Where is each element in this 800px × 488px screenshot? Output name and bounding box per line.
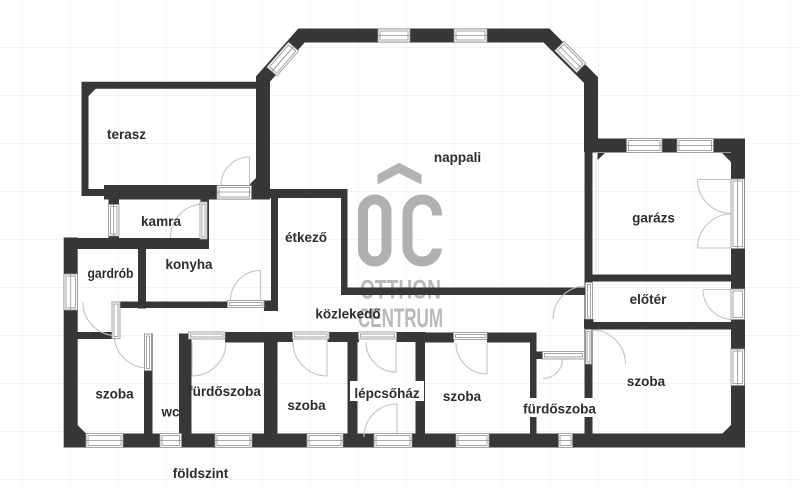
svg-text:fürdőszoba: fürdőszoba <box>523 402 596 417</box>
svg-text:kamra: kamra <box>141 214 181 229</box>
svg-text:étkező: étkező <box>285 230 327 245</box>
svg-text:wc: wc <box>160 405 180 420</box>
svg-text:garázs: garázs <box>632 211 675 226</box>
svg-text:konyha: konyha <box>166 257 213 272</box>
svg-text:szoba: szoba <box>95 387 134 402</box>
svg-text:terasz: terasz <box>107 127 146 142</box>
svg-text:fürdőszoba: fürdőszoba <box>188 384 261 399</box>
svg-text:földszint: földszint <box>173 466 229 481</box>
svg-text:gardrób: gardrób <box>88 266 134 281</box>
svg-text:előtér: előtér <box>630 292 668 307</box>
svg-text:szoba: szoba <box>627 374 666 389</box>
svg-text:nappali: nappali <box>434 150 481 165</box>
svg-text:szoba: szoba <box>443 389 482 404</box>
svg-text:közlekedő: közlekedő <box>315 307 380 322</box>
svg-text:szoba: szoba <box>287 398 326 413</box>
svg-text:lépcsőház: lépcsőház <box>354 386 420 401</box>
